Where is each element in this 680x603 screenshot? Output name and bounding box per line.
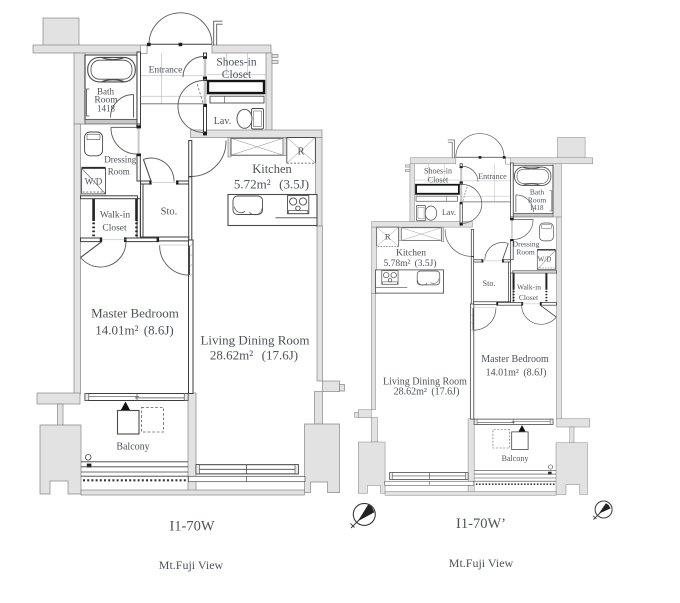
svg-text:W/D: W/D — [85, 177, 103, 187]
svg-text:14.01m² (8.6J): 14.01m² (8.6J) — [95, 323, 173, 338]
svg-text:14.01m² (8.6J): 14.01m² (8.6J) — [486, 368, 547, 379]
svg-text:Entrance: Entrance — [478, 172, 507, 181]
svg-text:5.72m² (3.5J): 5.72m² (3.5J) — [234, 177, 309, 192]
svg-text:28.62m² (17.6J): 28.62m² (17.6J) — [210, 348, 298, 363]
svg-text:Lav.: Lav. — [214, 116, 231, 127]
svg-text:W/D: W/D — [538, 256, 552, 264]
svg-text:Dressing: Dressing — [104, 155, 136, 165]
svg-text:Sto.: Sto. — [161, 206, 178, 217]
svg-text:R: R — [385, 232, 391, 242]
svg-text:Shoes-in: Shoes-in — [424, 167, 452, 176]
svg-text:1418: 1418 — [530, 204, 545, 212]
svg-text:I1-70W: I1-70W — [169, 519, 214, 535]
svg-text:5.78m² (3.5J): 5.78m² (3.5J) — [383, 258, 436, 269]
svg-text:Room: Room — [516, 248, 535, 257]
svg-text:Room: Room — [108, 166, 130, 176]
svg-text:Closet: Closet — [222, 69, 252, 81]
svg-text:1418: 1418 — [97, 103, 116, 113]
svg-text:Balcony: Balcony — [116, 442, 149, 453]
svg-text:Walk-in: Walk-in — [517, 283, 541, 292]
svg-text:Entrance: Entrance — [149, 66, 183, 76]
svg-text:Closet: Closet — [102, 224, 127, 234]
svg-text:Shoes-in: Shoes-in — [216, 57, 257, 69]
svg-text:Balcony: Balcony — [502, 454, 529, 463]
svg-text:Closet: Closet — [428, 176, 449, 185]
svg-text:Lav.: Lav. — [442, 208, 456, 217]
svg-text:Kitchen: Kitchen — [252, 162, 292, 176]
svg-text:Mt.Fuji View: Mt.Fuji View — [159, 558, 224, 572]
svg-text:Walk-in: Walk-in — [100, 211, 131, 221]
svg-text:Sto.: Sto. — [483, 279, 496, 288]
svg-text:I1-70W’: I1-70W’ — [456, 516, 506, 532]
svg-text:R: R — [297, 147, 304, 158]
svg-text:Master Bedroom: Master Bedroom — [481, 354, 549, 365]
svg-text:28.62m² (17.6J): 28.62m² (17.6J) — [394, 387, 460, 398]
svg-text:Kitchen: Kitchen — [396, 249, 426, 259]
svg-text:Living Dining Room: Living Dining Room — [200, 333, 309, 348]
svg-text:Closet: Closet — [519, 293, 539, 302]
svg-text:Master Bedroom: Master Bedroom — [91, 306, 179, 321]
svg-text:Mt.Fuji View: Mt.Fuji View — [449, 556, 514, 570]
